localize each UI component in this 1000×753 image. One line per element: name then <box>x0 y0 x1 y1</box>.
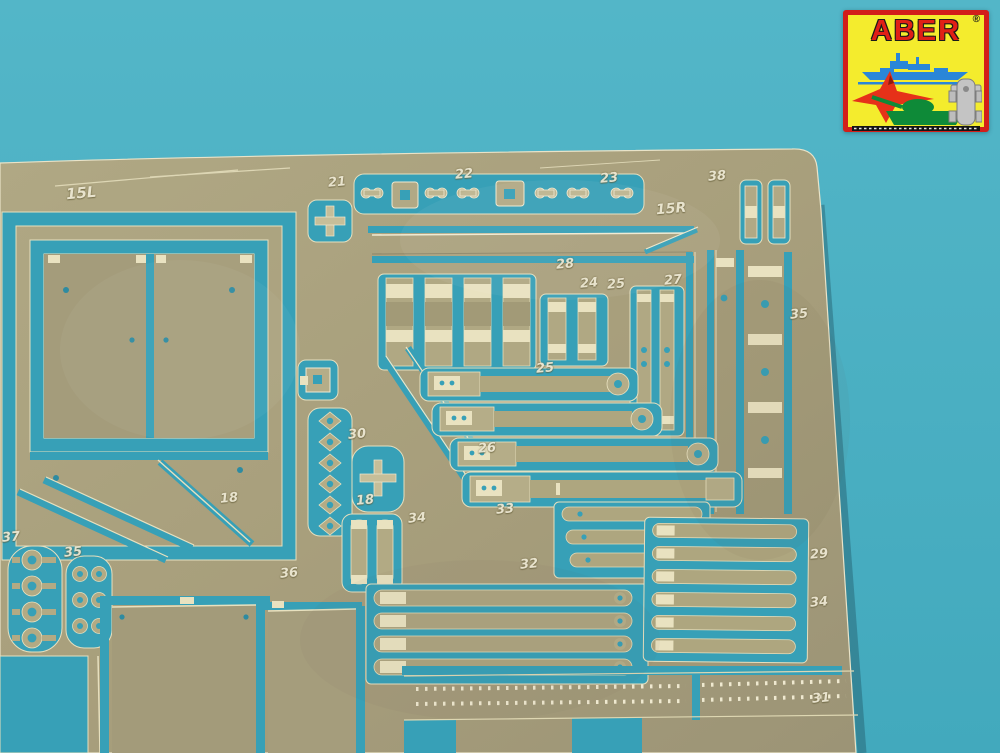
part-number-label: 25 <box>535 361 554 376</box>
aber-logo: ABER ® <box>843 10 989 132</box>
part-number-label: 18 <box>355 493 374 508</box>
part-number-label: 15L <box>65 185 97 203</box>
battleship-icon <box>858 53 974 85</box>
part-number-label: 25 <box>606 277 625 292</box>
part-number-label: 29 <box>809 547 828 562</box>
part-number-label: 36 <box>279 566 298 581</box>
part-number-label: 35 <box>63 545 82 560</box>
aber-logo-artwork <box>850 45 982 131</box>
part-number-label: 33 <box>495 502 514 517</box>
photo-stage: 15L2122233815R28242527352530261818343332… <box>0 0 1000 753</box>
registered-trademark-symbol: ® <box>973 14 980 25</box>
part-number-label: 18 <box>219 491 238 506</box>
part-number-label: 21 <box>327 175 346 190</box>
aber-brand-text: ABER <box>871 15 961 47</box>
part-number-label: 22 <box>454 167 473 182</box>
part-number-label: 38 <box>707 169 726 184</box>
part-number-label: 37 <box>1 530 20 545</box>
part-number-label: 34 <box>407 511 426 526</box>
photo-of-etched-fret: { "colors": { "background_teal": "#4bb0c… <box>0 0 1000 753</box>
part-number-label: 23 <box>599 171 618 186</box>
part-number-label: 31 <box>811 691 830 706</box>
part-number-label: 28 <box>555 257 574 272</box>
part-number-label: 26 <box>477 441 496 456</box>
part-number-label: 15R <box>655 201 686 218</box>
car-icon <box>949 79 982 125</box>
part-number-label: 35 <box>789 307 808 322</box>
tank-track-strip <box>852 126 980 131</box>
aber-logo-title-row: ABER ® <box>848 16 984 46</box>
part-number-label: 32 <box>519 557 538 572</box>
part-number-label: 24 <box>579 276 598 291</box>
part-number-label: 27 <box>663 273 682 288</box>
part-number-label: 34 <box>809 595 828 610</box>
part-number-label: 30 <box>347 427 366 442</box>
